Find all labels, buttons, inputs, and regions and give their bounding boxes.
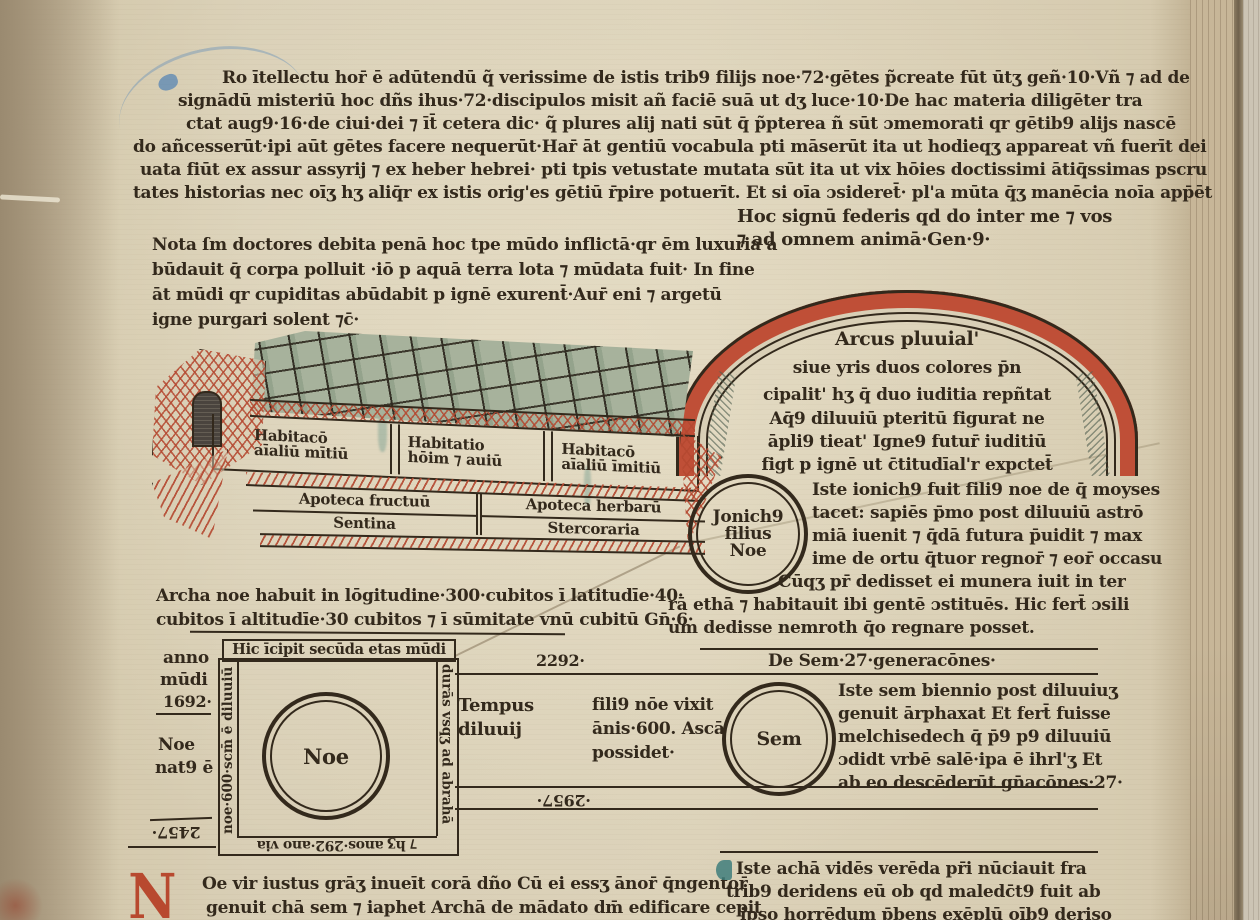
text-line: Oe vir iustus grāʒ inueīt corā dño Cū ei…: [202, 876, 747, 893]
text-line: Iste sem biennio post diluuiuʒ: [838, 683, 1118, 700]
timeline-rule: [455, 673, 1098, 675]
text-line: Nota ſm doctores debita penā hoc tpe mūd…: [152, 237, 777, 254]
text-line: siue yris duos colores p̄n: [676, 360, 1138, 377]
underline: [190, 631, 565, 635]
filius-note: possidet·: [592, 745, 675, 762]
roundel-name: filius: [725, 526, 772, 543]
timeline-rule: [700, 648, 1098, 650]
margin-text: nat9 ē: [155, 760, 213, 777]
margin-text: 1692·: [163, 694, 212, 710]
margin-rule: [128, 846, 216, 848]
text-line: Archa noe habuit in lōgitudine·300·cubit…: [156, 588, 683, 605]
text-line: tates historias nec oīʒ hʒ aliq̄r ex ist…: [133, 185, 1212, 202]
roundel-name: Noe: [266, 696, 386, 816]
noe-box-right-caption: durās vsqʒ ad abrahā: [439, 664, 453, 834]
text-line: Aq̄9 diluuiū pteritū figurat ne: [676, 411, 1138, 428]
timeline-rule: [455, 808, 1098, 810]
ark-hold-label: Apoteca herbarū: [482, 496, 705, 516]
heading-text: Hic īcipit secūda etas mūdi: [232, 643, 446, 658]
fore-edge-outer: [1243, 0, 1260, 920]
text-line: Cūqʒ pr̄ dedisset ei munera iuit in ter: [778, 574, 1126, 591]
rainbow-title: Arcus pluuial': [676, 330, 1138, 349]
text-line: uata fiūt ex assur assyrij ⁊ ex heber he…: [140, 162, 1207, 179]
text-line: ctat aug9·16·de ciui·dei ⁊ īt̄ cetera di…: [186, 116, 1176, 133]
text-line: genuit chā sem ⁊ iaphet Archā de mādato …: [206, 900, 761, 917]
ark-illustration: Habitacō aīaliū mītiū Habitatio hōim ⁊ a…: [150, 325, 710, 547]
text-line: ɔdidt vrbē salē·ipa ē ihrl'ʒ Et: [838, 752, 1102, 769]
timeline-rule: [720, 851, 1098, 853]
filius-note: ānis·600. Ascā: [592, 721, 725, 738]
timeline-number-bottom: ·2957·: [537, 792, 591, 808]
rainbow-figure: Arcus pluuial' siue yris duos colores p̄…: [676, 290, 1138, 476]
text-line: Hoc signū federis qd do inter me ⁊ vos: [737, 208, 1112, 226]
text-line: ab eo descēderūt gn̄acōnes·27·: [838, 775, 1123, 792]
ark-hold-label: Apoteca fructuū: [253, 490, 476, 510]
manuscript-page: Ro ītellectu hor̄ ē adūtendū q̃ verissim…: [0, 0, 1260, 920]
roundel-name: Sem: [726, 686, 832, 792]
text-line: miā iuenit ⁊ q̄dā futura p̄uidit ⁊ max: [812, 528, 1142, 545]
fore-edge-dark-line: [1234, 0, 1243, 920]
text-line: trib9 deridens eū ob qd maledc̄t9 fuit a…: [726, 884, 1100, 901]
paraph-mark: [716, 860, 732, 880]
text-line: āpli9 tieat' Igne9 futur̄ iuditiū: [676, 434, 1138, 451]
text-line: cipalit' hʒ q̄ duo iuditia repñtat: [676, 387, 1138, 404]
gutter-shadow: [0, 0, 120, 920]
text-line: āt mūdi qr cupiditas abūdabit p ignē exu…: [152, 287, 722, 304]
text-line: figt p ignē ut c̄titudīal'r expctet̄: [676, 457, 1138, 474]
noe-box-left-caption: noe·600·scm̄ ē diluuiū: [222, 664, 236, 834]
tempus-label: Tempus: [458, 697, 534, 715]
margin-text: anno: [163, 650, 209, 667]
text-line: ipso horrēdum p̄bens exēplū oīb9 deriso: [740, 907, 1112, 920]
de-sem-heading: De Sem·27·generacōnes·: [768, 653, 996, 670]
margin-number-rotated: 2457·: [152, 824, 201, 840]
ark-hold-label: Sentina: [253, 509, 476, 533]
tempus-label: diluuij: [458, 721, 522, 739]
timeline-number-top: 2292·: [536, 653, 585, 669]
text-line: signādū misteriū hoc dñs ihus·72·discipu…: [178, 93, 1142, 110]
text-line: um dedisse nemroth q̄o regnare posset.: [668, 620, 1035, 637]
rubricated-initial: N: [128, 866, 176, 920]
text-line: tacet: sapiēs p̄mo post diluuiū astrō: [812, 505, 1143, 522]
roundel-name: Jonich9: [713, 509, 784, 526]
box-inner-line-right: [436, 660, 438, 836]
text-line: Iste achā vidēs verēda pr̄i nūciauit fra: [736, 861, 1087, 878]
text-line: rā ethā ⁊ habitauit ibi gentē ɔstituēs. …: [668, 597, 1129, 614]
margin-rule: [150, 817, 212, 821]
text-line: genuit ārphaxat Et fert̄ fuisse: [838, 706, 1110, 723]
text-line: ime de ortu q̄tuor regnor̄ ⁊ eor̄ occasu: [812, 551, 1162, 568]
text-line: cubitos ī altitudīe·30 cubitos ⁊ ī sūmit…: [156, 612, 693, 629]
corner-stain: [0, 878, 43, 920]
text-line: do añcesserūt·ipi aūt gētes facere neque…: [133, 139, 1206, 156]
filius-note: fili9 nōe vixit: [592, 697, 713, 714]
roundel-name: Noe: [730, 543, 767, 560]
noe-roundel: Noe: [262, 692, 390, 820]
sem-roundel: Sem: [722, 682, 836, 796]
margin-rule: [156, 713, 211, 715]
text-line: melchisedech q̄ p̄9 p9 diluuiū: [838, 729, 1111, 746]
box-inner-line-left: [237, 660, 239, 836]
noe-box-bottom-caption: ⁊ hʒ anos·292·ano via: [242, 838, 432, 852]
text-line: būdauit q̄ corpa polluit ·iō p aquā terr…: [152, 262, 754, 279]
margin-text: Noe: [158, 737, 195, 754]
text-line: Iste ionich9 fuit fili9 noe de q̄ moyses: [812, 482, 1160, 499]
ark-hold-label: Stercoraria: [482, 515, 705, 539]
margin-text: mūdi: [160, 672, 208, 689]
text-line: Ro ītellectu hor̄ ē adūtendū q̃ verissim…: [222, 70, 1190, 87]
